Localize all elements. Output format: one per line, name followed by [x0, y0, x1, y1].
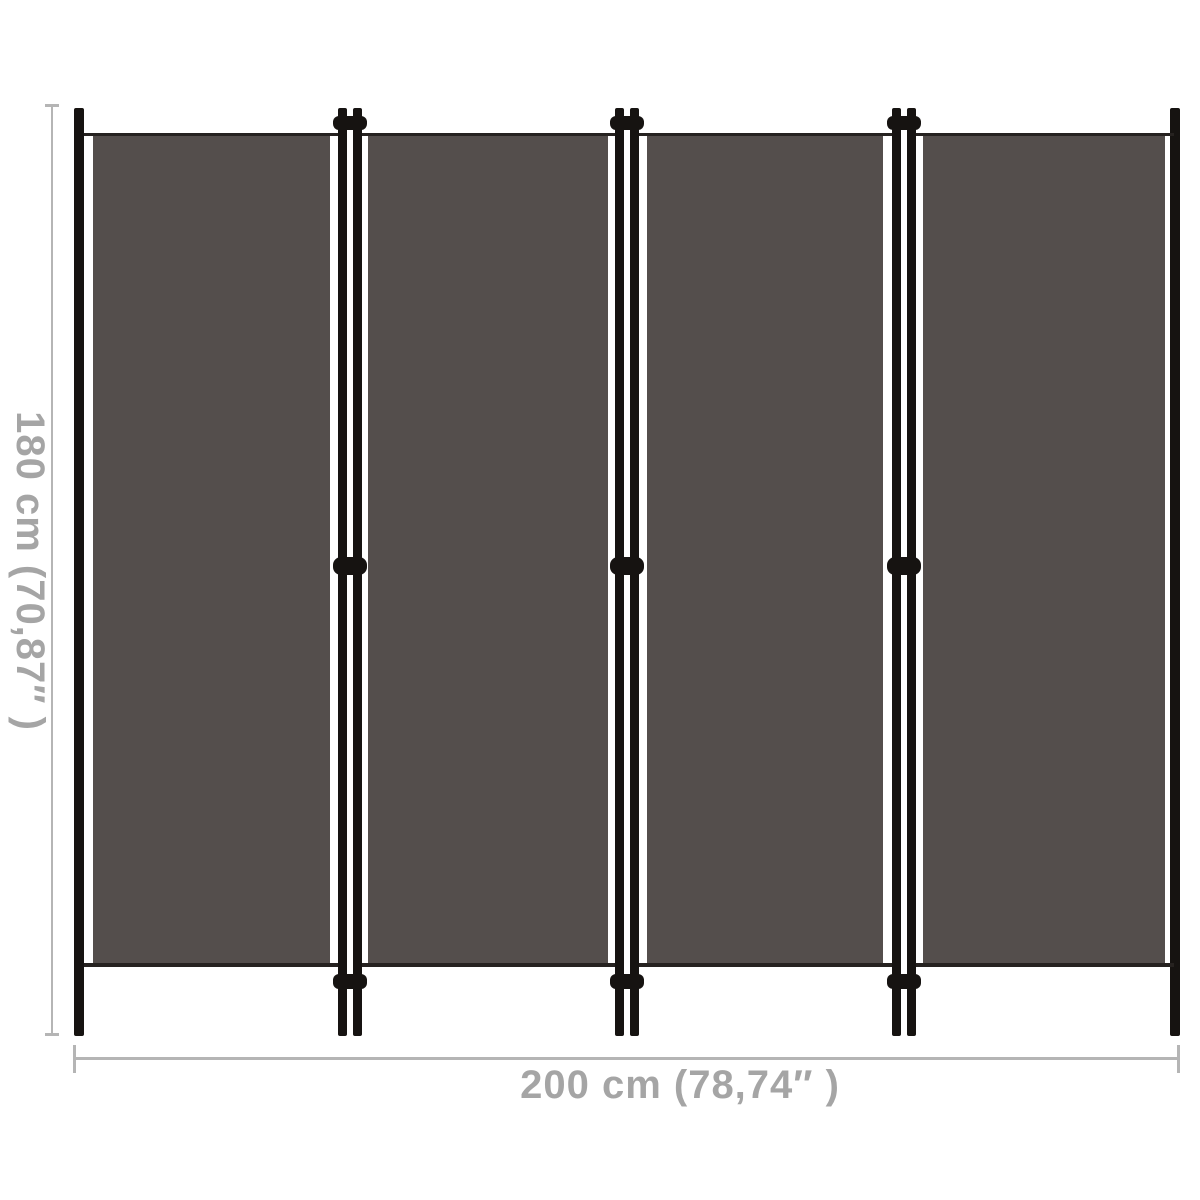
frame-pole-left [74, 108, 84, 1036]
width-dimension-cap-left [73, 1045, 76, 1073]
fabric-panel-3 [647, 133, 883, 967]
height-dimension-cap-bottom [45, 1033, 59, 1036]
junction-pole-right [630, 108, 639, 1036]
junction-pole-right [907, 108, 916, 1036]
junction-pole-left [892, 108, 901, 1036]
junction-pole-left [338, 108, 347, 1036]
junction-pole-left [615, 108, 624, 1036]
height-dimension-cap-top [45, 104, 59, 107]
hinge-junction-3 [887, 108, 921, 1036]
fabric-panel-1 [93, 133, 330, 967]
fabric-panel-4 [923, 133, 1165, 967]
room-divider-dimension-diagram: 180 cm (70,87″ ) 200 cm (78,74″ ) [0, 0, 1200, 1200]
width-dimension-cap-right [1177, 1045, 1180, 1073]
junction-pole-right [353, 108, 362, 1036]
height-dimension-label: 180 cm (70,87″ ) [7, 399, 53, 743]
hinge-junction-1 [333, 108, 367, 1036]
width-dimension-label: 200 cm (78,74″ ) [430, 1062, 930, 1108]
hinge-junction-2 [610, 108, 644, 1036]
width-dimension-line [73, 1057, 1180, 1060]
frame-pole-right [1170, 108, 1180, 1036]
fabric-panel-2 [368, 133, 608, 967]
